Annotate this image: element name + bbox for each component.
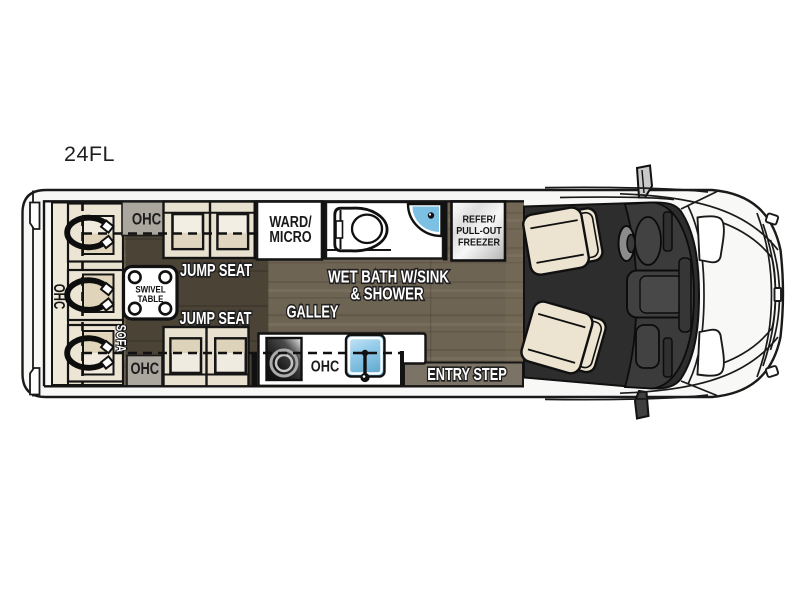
- svg-text:OHC: OHC: [131, 361, 160, 379]
- svg-text:SOFA: SOFA: [113, 325, 128, 353]
- svg-text:OHC: OHC: [132, 210, 162, 229]
- svg-text:OHC: OHC: [51, 284, 69, 310]
- svg-text:& SHOWER: & SHOWER: [350, 285, 423, 304]
- svg-text:JUMP SEAT: JUMP SEAT: [180, 309, 252, 328]
- svg-text:OHC: OHC: [311, 358, 340, 376]
- svg-text:MICRO: MICRO: [269, 229, 311, 246]
- svg-text:24FL: 24FL: [64, 142, 115, 166]
- svg-text:TABLE: TABLE: [138, 294, 164, 305]
- svg-text:REFER/: REFER/: [462, 214, 495, 226]
- svg-text:PULL-OUT: PULL-OUT: [456, 225, 502, 237]
- svg-text:GALLEY: GALLEY: [287, 303, 339, 322]
- svg-text:JUMP SEAT: JUMP SEAT: [180, 261, 252, 280]
- svg-text:FREEZER: FREEZER: [458, 237, 500, 249]
- svg-text:ENTRY STEP: ENTRY STEP: [427, 365, 506, 384]
